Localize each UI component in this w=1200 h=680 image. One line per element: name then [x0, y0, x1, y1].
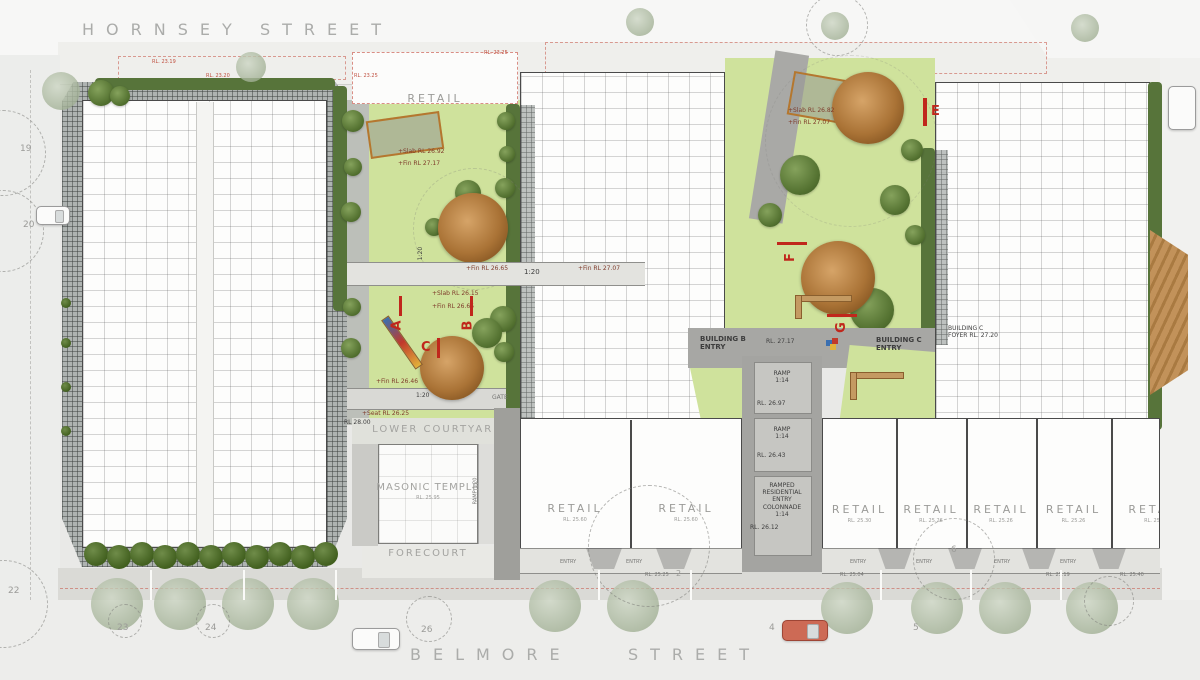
car-icon [782, 620, 828, 641]
lot-number: 2 [676, 569, 681, 579]
level-annotation: +Slab RL 26.82 [788, 107, 835, 114]
building-c-foyer-rl: FOYER RL. 27.20 [948, 332, 998, 339]
car-windshield [55, 210, 64, 224]
retail-unit-rl: RL. 25.26 [1036, 518, 1111, 524]
entry-label: ENTRY [994, 559, 1010, 565]
colonnade-grade: 1:14 [775, 511, 788, 518]
colonnade-word: COLONNADE [763, 504, 801, 511]
walkway-grade: 1:20 [416, 392, 429, 399]
colonnade-word: RESIDENTIAL [762, 489, 801, 496]
entry-label: ENTRY [560, 559, 576, 565]
street-tree-icon [626, 8, 654, 36]
ground-rl: RL. 25.40 [1120, 572, 1144, 578]
tree-icon [905, 225, 925, 245]
building-c-foyer-name: BUILDING C [948, 325, 983, 332]
tree-icon [341, 338, 361, 358]
paving-joint [970, 570, 972, 600]
building-b-entry-word: ENTRY [700, 343, 726, 351]
paving-joint [243, 570, 245, 600]
walkway-grade-vertical: 1:20 [417, 247, 424, 260]
l-bench [850, 372, 904, 379]
building-c-foyer-label: BUILDING C FOYER RL. 27.20 [948, 325, 998, 339]
shrub-icon [61, 382, 71, 392]
tree-icon [341, 202, 361, 222]
lot-number: 6 [951, 545, 957, 556]
tree-icon [472, 318, 502, 348]
car-icon [352, 628, 400, 650]
retail-right-divider [1111, 419, 1113, 550]
lower-courtyard-label: LOWER COURTYARD [360, 424, 515, 436]
hornsey-street-name: HORNSEY [82, 20, 244, 39]
section-marker-g: G [834, 322, 849, 333]
masonic-temple-footprint [378, 444, 478, 544]
level-annotation: +Fin RL 27.07 [578, 265, 620, 272]
building-b-entry-rl: RL. 27.17 [766, 338, 795, 345]
section-marker-a: A [390, 320, 405, 330]
building-c-entry-label: BUILDING C ENTRY [876, 336, 922, 353]
section-marker-b: B [460, 321, 475, 331]
ground-rl: RL. 25.04 [840, 572, 864, 578]
level-annotation: RL 28.00 [344, 419, 371, 426]
level-annotation: +Fin RL 26.46 [376, 378, 418, 385]
lot-number: 5 [913, 623, 919, 634]
building-c-west-terrace [936, 150, 948, 345]
level-annotation: +Fin RL 26.65 [466, 265, 508, 272]
hedge-tree-icon [268, 542, 292, 566]
level-annotation: +Seat RL 26.25 [362, 410, 409, 417]
survey-level: RL. 23.20 [206, 73, 230, 79]
l-bench [850, 372, 857, 400]
retail-unit-label: RETAIL [966, 503, 1036, 516]
retail-unit-label: RETAIL [1036, 503, 1111, 516]
street-tree-icon [1071, 14, 1099, 42]
ramp-grade: 1:14 [775, 377, 788, 384]
lot-number: 19 [20, 144, 31, 155]
building-c-entry-word: ENTRY [876, 344, 902, 352]
l-bench [795, 295, 802, 319]
building-a-north-hedge [95, 78, 335, 90]
survey-level: RL. 23.25 [354, 73, 378, 79]
section-marker-e: E [931, 104, 940, 119]
street-tree-icon [529, 580, 581, 632]
section-marker-bar [437, 338, 440, 358]
tree-icon [780, 155, 820, 195]
retail-unit-rl: RL. 25.26 [1111, 518, 1160, 524]
ramp-word: RAMP [774, 370, 791, 377]
retail-unit-label: RETAIL [896, 503, 966, 516]
section-marker-bar [827, 314, 857, 317]
level-annotation: +Slab RL 26.92 [398, 148, 445, 155]
street-tree-icon [236, 52, 266, 82]
retail-unit-label: RETAIL [823, 503, 896, 516]
belmore-street-name: BELMORE [410, 645, 572, 664]
hedge-tree-icon [245, 545, 269, 569]
ramp-word: RAMP [774, 426, 791, 433]
walkway-grade: 1:20 [524, 268, 540, 276]
building-b-name: BUILDING B [700, 335, 746, 343]
building-c-name: BUILDING C [876, 336, 922, 344]
hedge-tree-icon [199, 545, 223, 569]
section-marker-bar [399, 296, 402, 316]
l-bench [795, 295, 852, 302]
tree-icon [758, 203, 782, 227]
hedge-tree-icon [153, 545, 177, 569]
hedge-tree-icon [314, 542, 338, 566]
lot-number: 23 [117, 623, 128, 634]
ramp-1-label: RAMP 1:14 [754, 370, 810, 384]
hedge-tree-icon [176, 542, 200, 566]
feature-tree-icon [438, 193, 508, 263]
retail-right-divider [896, 419, 898, 550]
street-tree-icon [821, 582, 873, 634]
tree-icon [499, 146, 515, 162]
car-windshield [807, 624, 819, 639]
lot-number: 4 [769, 623, 775, 634]
lot-number: 22 [8, 586, 19, 597]
play-equipment-blob [830, 344, 836, 350]
ramp-grade: 1:14 [775, 433, 788, 440]
tree-icon [342, 110, 364, 132]
building-a-corridor [196, 102, 214, 546]
gate-label: GATE [492, 394, 508, 401]
tree-icon [344, 158, 362, 176]
paving-joint [880, 570, 882, 600]
lot-number: 26 [421, 625, 432, 636]
tree-icon [497, 112, 515, 130]
section-marker-c: C [421, 340, 431, 355]
retail-right-divider [1036, 419, 1038, 550]
retail-unit-rl: RL. 25.26 [966, 518, 1036, 524]
section-marker-f: F [783, 253, 798, 262]
temple-ramp-strip [478, 444, 495, 544]
level-annotation: +Fin RL 27.17 [398, 160, 440, 167]
tree-icon [494, 342, 514, 362]
street-tree-icon [287, 578, 339, 630]
retail-right-group: RETAIL RL. 25.30 RETAIL RL. 25.26 RETAIL… [822, 418, 1160, 550]
forecourt-label: FORECOURT [368, 548, 488, 560]
survey-level: RL. 23.19 [152, 59, 176, 65]
hedge-tree-icon [130, 542, 154, 566]
level-annotation: +Fin RL 26.65 [432, 303, 474, 310]
tree-icon [343, 298, 361, 316]
colonnade-label: RAMPED RESIDENTIAL ENTRY COLONNADE 1:14 [752, 482, 812, 518]
paving-joint [335, 570, 337, 600]
retail-top-label: RETAIL [352, 92, 518, 105]
survey-level: RL. 23.25 [484, 50, 508, 56]
paving-joint [150, 570, 152, 600]
building-c-apartments [935, 82, 1150, 430]
level-annotation: +Fin RL 27.07 [788, 119, 830, 126]
ramp-rl-2612: RL. 26.12 [750, 524, 779, 531]
shrub-icon [61, 338, 71, 348]
masonic-temple-label: MASONIC TEMPLE [370, 482, 486, 494]
retail-unit-rl: RL. 25.30 [823, 518, 896, 524]
feature-tree-icon [832, 72, 904, 144]
colonnade-word: ENTRY [772, 496, 791, 503]
ramp-rl-2643: RL. 26.43 [757, 452, 786, 459]
section-marker-bar [777, 242, 807, 245]
tree-icon [880, 185, 910, 215]
building-b-entry-label: BUILDING B ENTRY [700, 335, 746, 352]
dark-link-path [494, 408, 520, 580]
car-icon [1168, 86, 1196, 130]
section-marker-bar [470, 296, 473, 316]
tree-icon [110, 86, 130, 106]
hedge-tree-icon [84, 542, 108, 566]
ramp-2-label: RAMP 1:14 [754, 426, 810, 440]
entry-label: ENTRY [850, 559, 866, 565]
street-tree-icon [42, 72, 80, 110]
setback-circle [1084, 576, 1134, 626]
paving-joint [1060, 570, 1062, 600]
colonnade-word: RAMPED [769, 482, 794, 489]
hornsey-street-type: STREET [260, 20, 393, 39]
section-marker-bar [923, 98, 927, 126]
lot-number: 24 [205, 623, 216, 634]
setback-circle [913, 518, 995, 600]
masonic-temple-rl: RL. 25.95 [370, 495, 486, 501]
retail-unit-label: RETAIL [1111, 503, 1160, 516]
paving-joint [690, 570, 692, 600]
paving-joint [598, 570, 600, 600]
car-windshield [378, 632, 390, 648]
shrub-icon [61, 426, 71, 436]
shrub-icon [61, 298, 71, 308]
tree-icon [901, 139, 923, 161]
east-terraced-garden [1150, 230, 1188, 395]
lot-number: 20 [23, 220, 34, 231]
hedge-tree-icon [222, 542, 246, 566]
hedge-tree-icon [107, 545, 131, 569]
temple-ramp-label: RAMP 1:20 [472, 478, 478, 505]
street-tree-icon [979, 582, 1031, 634]
entry-label: ENTRY [1060, 559, 1076, 565]
hedge-tree-icon [291, 545, 315, 569]
car-icon [36, 206, 70, 225]
ground-rl: RL. 25.19 [1046, 572, 1070, 578]
feature-tree-icon [801, 241, 875, 315]
ramp-rl-2697: RL. 26.97 [757, 400, 786, 407]
belmore-street-type: STREET [628, 645, 761, 664]
site-plan-canvas: HORNSEY STREET BELMORE STREET RETAIL [0, 0, 1200, 680]
